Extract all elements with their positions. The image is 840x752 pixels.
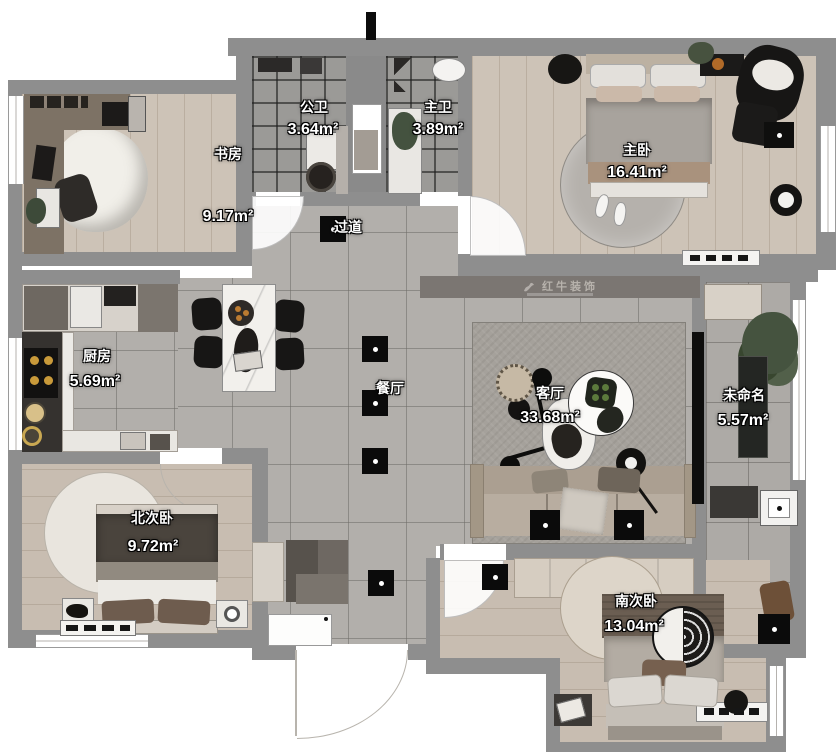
- sofa-tray: [614, 510, 644, 540]
- appliance: [70, 286, 102, 328]
- fruit: [602, 384, 609, 391]
- wall: [8, 270, 180, 284]
- pillow: [650, 64, 706, 88]
- bath-shelf: [258, 58, 292, 72]
- shaft-appliance: [354, 130, 378, 170]
- stove: [24, 348, 58, 398]
- cabinet-dot: [324, 617, 328, 621]
- dining-chair: [191, 297, 223, 331]
- window: [36, 634, 148, 648]
- fruit: [592, 394, 599, 401]
- room-label-north-bedroom: 北次卧: [131, 511, 173, 526]
- watermark-text: 红牛装饰: [542, 282, 598, 293]
- stove-burner: [30, 356, 39, 365]
- small-appliance: [150, 434, 170, 450]
- tv-screen: [692, 332, 704, 504]
- room-area-north-bedroom: 9.72m²: [128, 538, 179, 556]
- appliance: [104, 286, 136, 306]
- stove-burner: [44, 356, 53, 365]
- window: [8, 96, 24, 184]
- fruit: [602, 394, 609, 401]
- drain-dot: [777, 506, 782, 511]
- brand-logo-icon: [522, 281, 537, 294]
- window: [820, 126, 836, 232]
- monitor: [102, 102, 128, 126]
- wall: [236, 80, 252, 266]
- room-area-unnamed: 5.57m²: [718, 412, 769, 430]
- ac-vents: [690, 255, 752, 261]
- fruit-tray: [584, 376, 618, 410]
- room-area-south-bedroom: 13.04m²: [604, 618, 664, 636]
- bed-headboard: [608, 726, 722, 740]
- ceiling-light: [362, 336, 388, 362]
- flue-mark: [366, 12, 376, 40]
- room-area-kitchen: 5.69m²: [70, 373, 121, 391]
- washing-machine: [306, 162, 336, 192]
- stove-burner: [30, 376, 39, 385]
- wall: [546, 742, 786, 752]
- room-area-study: 9.17m²: [203, 208, 254, 226]
- printer: [128, 96, 146, 132]
- wall: [252, 644, 296, 660]
- tray: [233, 350, 263, 372]
- coffee-maker: [228, 300, 254, 326]
- room-label-master-bath: 主卫: [424, 100, 452, 115]
- room-label-south-bedroom: 南次卧: [615, 594, 657, 609]
- fruit: [592, 384, 599, 391]
- washing-machine: [710, 486, 758, 518]
- outside-mask: [426, 674, 546, 752]
- wall: [408, 644, 440, 660]
- shower-fixture: [394, 58, 418, 92]
- wall: [426, 658, 560, 674]
- stove-burner: [44, 376, 53, 385]
- room-label-study: 书房: [214, 147, 242, 162]
- room-label-master-bedroom: 主卧: [623, 143, 651, 158]
- room-label-unnamed: 未命名: [723, 388, 765, 403]
- small-appliance: [120, 432, 146, 450]
- room-area-public-bath: 3.64m²: [288, 121, 339, 139]
- wardrobe: [296, 574, 348, 604]
- cat-decor: [66, 604, 88, 618]
- sofa-throw: [557, 487, 608, 535]
- door-opening: [444, 544, 506, 560]
- sofa-tray: [530, 510, 560, 540]
- coffee-dot: [236, 315, 242, 321]
- ceiling-light: [482, 564, 508, 590]
- wall: [458, 254, 694, 276]
- pillow: [590, 64, 646, 88]
- room-area-master-bedroom: 16.41m²: [607, 164, 667, 182]
- console-cabinet: [738, 356, 768, 458]
- sofa-pillow: [597, 467, 641, 494]
- cabinet: [138, 284, 178, 332]
- woven-decor: [496, 364, 534, 402]
- dining-chair: [193, 335, 225, 369]
- bed-fold: [96, 562, 218, 582]
- sofa-armrest: [470, 464, 484, 538]
- side-table-dot: [777, 133, 782, 138]
- entry-door-swing: [297, 650, 408, 739]
- room-label-dining: 餐厅: [376, 381, 404, 396]
- coffee-dot: [235, 306, 241, 312]
- clock-decor: [224, 606, 240, 622]
- room-area-master-bath: 3.89m²: [413, 121, 464, 139]
- pillow: [607, 674, 663, 708]
- wall: [228, 38, 836, 56]
- decor-item: [712, 58, 724, 70]
- ceiling-light: [368, 570, 394, 596]
- watermark-subline: [527, 293, 593, 296]
- floor-plan: 红牛装饰: [0, 0, 840, 752]
- speaker: [770, 184, 802, 216]
- watermark-bar: 红牛装饰: [420, 276, 700, 298]
- ac-vents: [704, 708, 760, 715]
- pillow: [157, 599, 210, 626]
- ceiling-light: [362, 448, 388, 474]
- hall-cabinet: [268, 614, 332, 646]
- pillow: [663, 674, 719, 708]
- pillow: [596, 86, 642, 102]
- coffee-dot: [243, 310, 249, 316]
- room-area-living: 33.68m²: [520, 409, 580, 427]
- toilet: [432, 58, 466, 82]
- shoe-cabinet: [252, 542, 284, 602]
- bookshelf-items: [30, 96, 88, 108]
- window: [769, 666, 784, 736]
- entry-door-leaf: [295, 650, 297, 736]
- tv-console-slats: [66, 625, 130, 631]
- room-label-living: 客厅: [536, 386, 564, 401]
- door-opening: [420, 192, 458, 206]
- wall: [8, 80, 252, 94]
- pillow: [654, 86, 700, 102]
- desk-stool: [758, 614, 790, 644]
- nightstand: [548, 54, 582, 84]
- cabinet: [704, 284, 762, 320]
- toilet: [300, 58, 322, 74]
- dining-chair: [273, 299, 306, 333]
- bowl: [24, 402, 46, 424]
- wall: [22, 252, 252, 266]
- room-label-kitchen: 厨房: [83, 349, 111, 364]
- bowl: [22, 426, 42, 446]
- dining-chair: [273, 337, 305, 371]
- room-label-hallway: 过道: [334, 220, 362, 235]
- room-label-public-bath: 公卫: [300, 100, 328, 115]
- fridge: [24, 286, 68, 330]
